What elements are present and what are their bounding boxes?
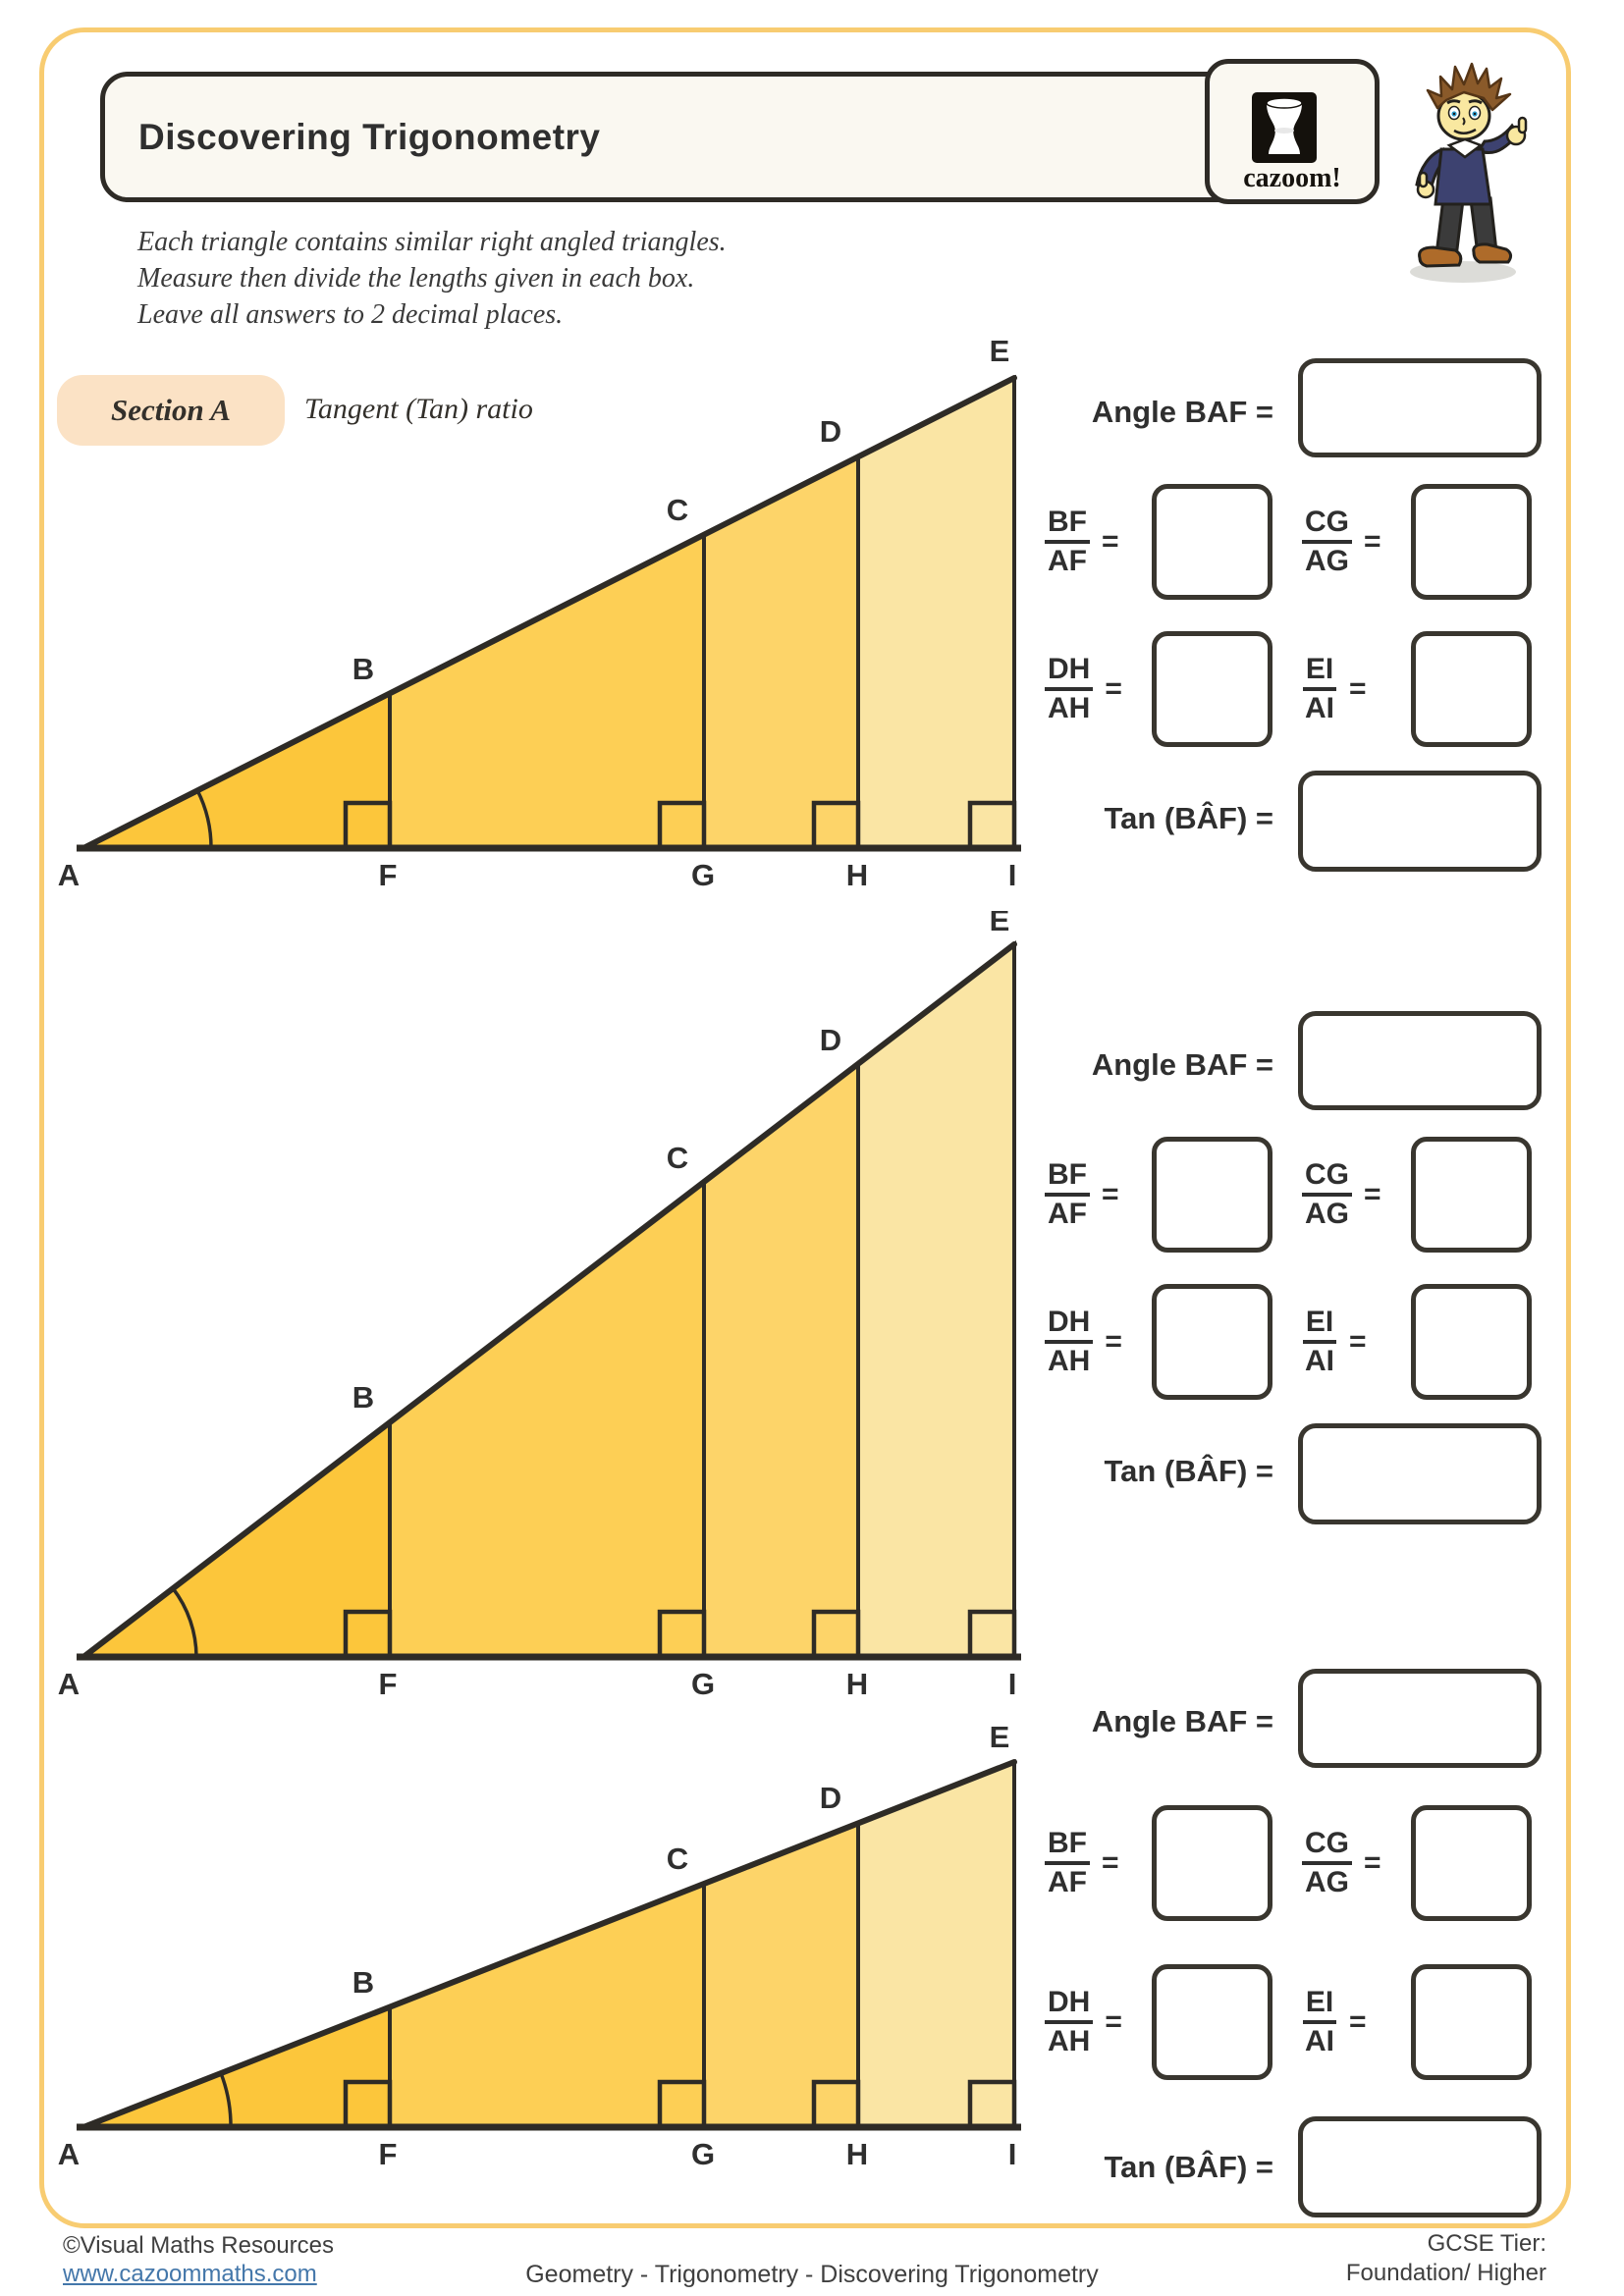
equals-sign: = [1105,1325,1122,1359]
fraction-numerator: DH [1045,1986,1093,2024]
fraction-answer-box[interactable] [1152,1964,1272,2080]
footer-copyright: ©Visual Maths Resources [63,2232,334,2260]
fraction-answer-box[interactable] [1411,484,1532,600]
fraction-denominator: AH [1045,1344,1093,1378]
fraction-answer-box[interactable] [1411,1137,1532,1253]
cazoom-logo-box: cazoom! [1205,59,1380,204]
equals-sign: = [1364,1178,1381,1211]
angle-baf-label: Angle BAF = [979,1047,1273,1083]
vertex-label-e: E [990,334,1010,368]
vertex-label-a: A [58,858,80,892]
vertex-label-i: I [1008,1667,1017,1701]
fraction-dh-ah: DHAH = [1045,1291,1122,1393]
fraction-answer-box[interactable] [1152,484,1272,600]
vertex-label-a: A [58,1667,80,1701]
vertex-label-h: H [846,858,868,892]
triangle-figure-1: A F G H I B C D E [0,324,1041,898]
fraction-cg-ag: CGAG = [1302,1812,1381,1914]
tan-baf-label: Tan (BÂF) = [979,2150,1273,2185]
fraction-answer-box[interactable] [1411,631,1532,747]
fraction-numerator: EI [1303,1986,1336,2024]
tan-answer-box[interactable] [1298,2116,1542,2217]
fraction-answer-box[interactable] [1152,1805,1272,1921]
fraction-answer-box[interactable] [1152,1284,1272,1400]
fraction-answer-box[interactable] [1152,631,1272,747]
fraction-dh-ah: DHAH = [1045,638,1122,740]
angle-baf-label: Angle BAF = [979,1704,1273,1739]
fraction-denominator: AG [1302,1197,1352,1231]
triangle-band [704,456,858,848]
fraction-denominator: AI [1302,691,1337,725]
fraction-numerator: CG [1302,506,1352,544]
vertex-label-i: I [1008,858,1017,892]
vertex-label-e: E [990,911,1010,937]
equals-sign: = [1364,525,1381,559]
fraction-numerator: EI [1303,653,1336,691]
vertex-label-b: B [352,1965,374,2000]
fraction-answer-box[interactable] [1411,1964,1532,2080]
vertex-label-h: H [846,1667,868,1701]
equals-sign: = [1102,1846,1119,1880]
triangle-figure-3: A F G H I B C D E [0,1716,1041,2179]
fraction-numerator: DH [1045,653,1093,691]
vertex-label-d: D [820,1023,841,1057]
vertex-label-c: C [667,1141,688,1175]
worksheet-page: Discovering Trigonometry cazoom! [0,0,1624,2296]
cazoom-logo-text: cazoom! [1210,163,1375,194]
fraction-bf-af: BFAF = [1045,1144,1119,1246]
vertex-label-b: B [352,652,374,686]
fraction-denominator: AF [1045,544,1090,578]
triangle-figure-2: A F G H I B C D E [0,911,1041,1706]
vertex-label-d: D [820,414,841,449]
fraction-ei-ai: EIAI = [1302,638,1367,740]
fraction-bf-af: BFAF = [1045,491,1119,593]
tan-baf-label: Tan (BÂF) = [979,1454,1273,1489]
fraction-numerator: BF [1045,1158,1090,1197]
triangle-band [858,378,1014,848]
fraction-denominator: AI [1302,2024,1337,2058]
instruction-line-1: Each triangle contains similar right ang… [137,224,884,260]
fraction-ei-ai: EIAI = [1302,1971,1367,2073]
vertex-label-c: C [667,1842,688,1876]
fraction-numerator: BF [1045,506,1090,544]
vertex-label-g: G [691,2137,715,2171]
triangle-band [390,1182,704,1657]
tan-answer-box[interactable] [1298,1423,1542,1524]
equals-sign: = [1102,1178,1119,1211]
footer-breadcrumb: Geometry - Trigonometry - Discovering Tr… [346,2261,1278,2289]
fraction-numerator: CG [1302,1827,1352,1865]
fraction-bf-af: BFAF = [1045,1812,1119,1914]
instruction-line-2: Measure then divide the lengths given in… [137,260,884,296]
fraction-numerator: EI [1303,1306,1336,1344]
vertex-label-a: A [58,2137,80,2171]
vertex-label-d: D [820,1781,841,1815]
angle-answer-box[interactable] [1298,1669,1542,1768]
equals-sign: = [1102,525,1119,559]
fraction-cg-ag: CGAG = [1302,491,1381,593]
vertex-label-f: F [379,1667,398,1701]
angle-answer-box[interactable] [1298,1011,1542,1110]
vertex-label-b: B [352,1380,374,1415]
header-box: Discovering Trigonometry [100,72,1380,202]
fraction-denominator: AG [1302,544,1352,578]
fraction-denominator: AF [1045,1865,1090,1899]
mascot-boy-icon [1390,55,1540,289]
footer-tier-value: Foundation/ Higher [1267,2260,1546,2287]
equals-sign: = [1105,2005,1122,2039]
vertex-label-g: G [691,1667,715,1701]
fraction-ei-ai: EIAI = [1302,1291,1367,1393]
tan-baf-label: Tan (BÂF) = [979,801,1273,836]
cazoom-drum-icon [1251,91,1318,164]
page-title: Discovering Trigonometry [138,117,601,158]
tan-answer-box[interactable] [1298,771,1542,872]
fraction-denominator: AG [1302,1865,1352,1899]
fraction-denominator: AH [1045,2024,1093,2058]
equals-sign: = [1364,1846,1381,1880]
equals-sign: = [1105,672,1122,706]
footer-url-link[interactable]: www.cazoommaths.com [63,2261,317,2288]
fraction-denominator: AF [1045,1197,1090,1231]
fraction-answer-box[interactable] [1411,1284,1532,1400]
fraction-dh-ah: DHAH = [1045,1971,1122,2073]
equals-sign: = [1349,2005,1367,2039]
triangle-band [704,1064,858,1657]
vertex-label-h: H [846,2137,868,2171]
fraction-numerator: CG [1302,1158,1352,1197]
equals-sign: = [1349,672,1367,706]
vertex-label-f: F [379,858,398,892]
footer-tier-label: GCSE Tier: [1267,2230,1546,2258]
fraction-numerator: DH [1045,1306,1093,1344]
triangle-band [390,534,704,848]
vertex-label-g: G [691,858,715,892]
angle-baf-label: Angle BAF = [979,395,1273,430]
instructions: Each triangle contains similar right ang… [137,224,884,333]
fraction-numerator: BF [1045,1827,1090,1865]
vertex-label-f: F [379,2137,398,2171]
equals-sign: = [1349,1325,1367,1359]
fraction-answer-box[interactable] [1411,1805,1532,1921]
angle-answer-box[interactable] [1298,358,1542,457]
vertex-label-c: C [667,493,688,527]
fraction-answer-box[interactable] [1152,1137,1272,1253]
fraction-denominator: AI [1302,1344,1337,1378]
triangle-band [390,1884,704,2127]
fraction-denominator: AH [1045,691,1093,725]
fraction-cg-ag: CGAG = [1302,1144,1381,1246]
